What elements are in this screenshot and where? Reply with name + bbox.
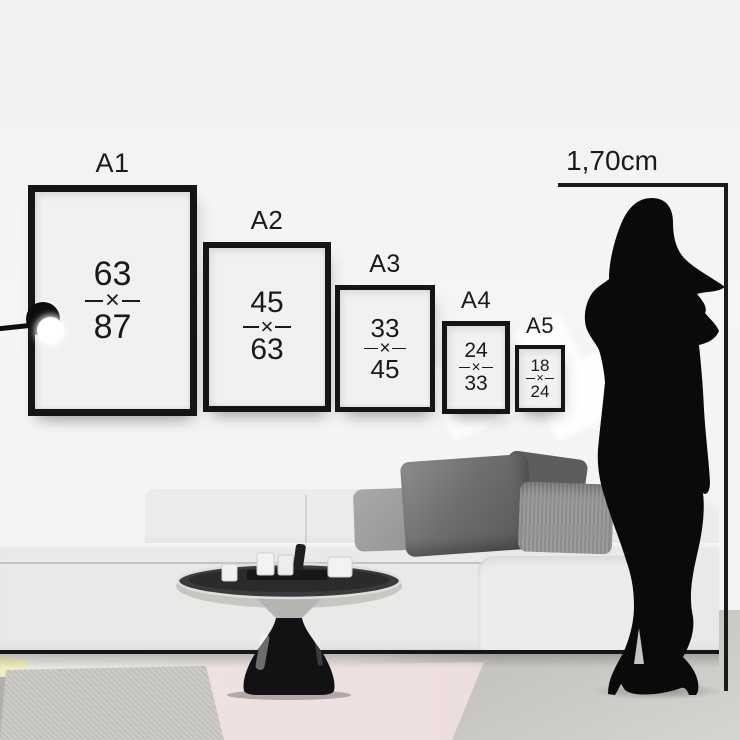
poster-frame-a5: A5 18 × 24: [515, 345, 565, 412]
dash-left: [459, 367, 470, 368]
poster-paper: 45 × 63: [209, 248, 325, 406]
poster-height-value: 33: [464, 373, 487, 394]
dash-right: [545, 378, 554, 379]
woman-silhouette-icon: [578, 196, 728, 696]
frame-size-label: A5: [515, 313, 565, 339]
poster-paper: 18 × 24: [519, 349, 561, 408]
frame-size-label: A4: [442, 287, 510, 315]
dash-right: [122, 300, 140, 302]
poster-frame-a4: A4 24 × 33: [442, 321, 510, 414]
poster-frame-a2: A2 45 × 63: [203, 242, 331, 412]
poster-frame-a1: A1 63 × 87: [28, 185, 197, 416]
coffee-table: [170, 540, 410, 700]
poster-height-value: 24: [531, 383, 550, 400]
dash-right: [482, 367, 493, 368]
silhouette-path: [585, 198, 725, 695]
frame-size-label: A2: [203, 205, 331, 236]
poster-paper: 63 × 87: [35, 192, 190, 409]
poster-size-guide-scene: 1,70cm A1 63 × 87 A2 45 × 63 A3 33 × 45 …: [0, 0, 740, 740]
poster-paper: 24 × 33: [447, 326, 505, 409]
poster-height-value: 45: [371, 356, 400, 383]
height-measure-label: 1,70cm: [552, 145, 672, 177]
poster-paper: 33 × 45: [340, 290, 430, 407]
dash-right: [392, 348, 406, 349]
dash-left: [85, 300, 103, 302]
poster-height-value: 63: [250, 335, 283, 366]
poster-frame-a3: A3 33 × 45: [335, 285, 435, 412]
height-measure-line-horizontal: [558, 183, 728, 187]
poster-height-value: 87: [94, 310, 132, 345]
dash-right: [275, 326, 291, 328]
dash-left: [526, 378, 535, 379]
frame-size-label: A1: [28, 148, 197, 179]
dash-left: [243, 326, 259, 328]
throw-pillow-velvet: [400, 454, 534, 558]
dash-left: [364, 348, 378, 349]
frame-size-label: A3: [335, 250, 435, 279]
lamp-glow: [37, 317, 64, 344]
